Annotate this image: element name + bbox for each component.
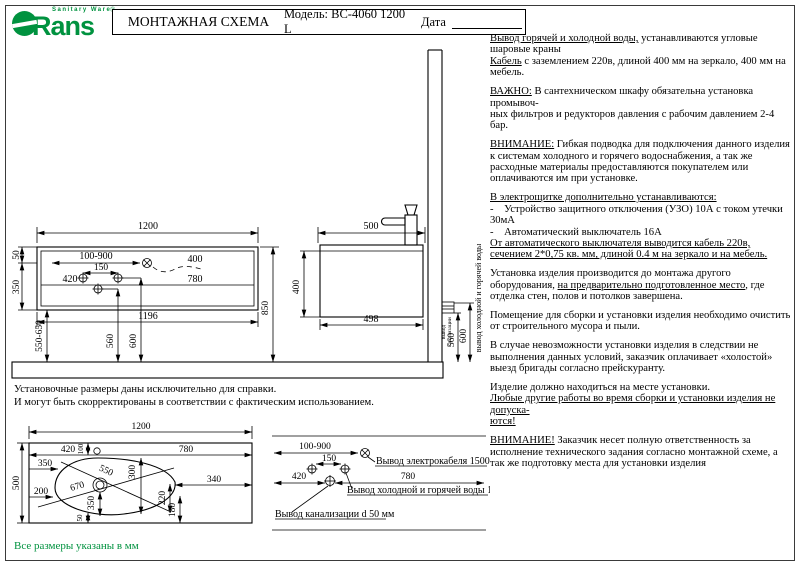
water-outlet-icon [113, 273, 124, 284]
electric-outlet-icon [361, 449, 370, 458]
dim-right-780: 780 [188, 274, 203, 285]
dim-side-water-height: 600 [459, 329, 469, 344]
outlets-layout-view: 100-900 Вывод электрокабеля 1500 мм 150 [272, 436, 490, 530]
dim-front-top: 50 [12, 250, 22, 260]
water-outlet-icon [307, 464, 318, 475]
dim-sink-340: 340 [207, 475, 222, 485]
dim-sink-550: 550 [97, 464, 114, 479]
dim-top-100: 100 [77, 443, 85, 454]
instruction-paragraph: ВАЖНО: В сантехническом шкафу обязательн… [490, 86, 792, 132]
water-outlet-label: вывод холодной и горячей воды [474, 243, 483, 352]
dim-top-right: 780 [179, 445, 194, 455]
instruction-paragraph: ВНИМАНИЕ! Заказчик несет полную ответств… [490, 435, 792, 469]
water-outlet-icon [340, 464, 351, 475]
front-view: 1200 50 350 100-900 400 [12, 221, 279, 362]
dim-outlet-range: 100-900 [299, 442, 331, 452]
cable-outlet-label: Вывод электрокабеля 1500 мм [376, 456, 490, 467]
instruction-paragraph: ВНИМАНИЕ: Гибкая подводка для подключени… [490, 139, 792, 185]
water-outlet-label: Вывод холодной и горячей воды 1/2" [347, 485, 490, 496]
dim-sink-670: 670 [69, 480, 86, 494]
dim-socket-range: 100-900 [79, 251, 112, 262]
water-outlet-icon [78, 273, 89, 284]
dim-top-depth: 500 [12, 476, 22, 491]
dim-water-height: 600 [129, 334, 139, 349]
units-note: Все размеры указаны в мм [14, 540, 139, 552]
instruction-paragraph: Изделие должно находиться на месте устан… [490, 382, 792, 428]
dim-side-depth: 500 [364, 221, 379, 232]
pipe-stub [442, 302, 454, 313]
dim-between-150: 150 [94, 263, 109, 273]
electric-outlet-icon [143, 259, 152, 268]
logo-brand-text: Rans [32, 15, 94, 37]
floor [12, 362, 443, 378]
instruction-paragraph: Помещение для сборки и установки изделия… [490, 310, 792, 333]
dim-sink-50: 50 [76, 514, 84, 522]
note-line-1: Установочные размеры даны исключительно … [14, 383, 374, 396]
montage-scheme-page: Rans Sanitary Ware ® МОНТАЖНАЯ СХЕМА Мод… [0, 0, 800, 566]
dim-sink-180: 180 [168, 503, 178, 518]
sewer-outlet-label: Вывод канализации d 50 мм [275, 509, 395, 520]
dim-left-420: 420 [63, 274, 78, 285]
brand-logo: Rans Sanitary Ware ® [12, 7, 94, 37]
dim-sink-350a: 350 [38, 459, 53, 469]
dim-sink-300: 300 [128, 465, 138, 480]
wall [428, 50, 442, 362]
dim-sink-200: 200 [34, 487, 49, 497]
dim-sink-350b: 350 [87, 496, 97, 511]
logo-tagline: Sanitary Ware [52, 7, 111, 13]
logo-disc-icon [12, 11, 37, 36]
dim-top-width: 1200 [132, 422, 151, 432]
drain-inner [96, 481, 104, 489]
model-label: Модель: BC-4060 1200 L [284, 7, 412, 37]
dim-outlet-420: 420 [292, 472, 307, 482]
bottom-drawing: 1200 500 420 780 100 350 550 300 670 [8, 422, 490, 540]
dim-side-bottom-depth: 498 [364, 314, 379, 325]
note-line-2: И могут быть скорректированы в соответст… [14, 396, 374, 409]
sewer-outlet-label-2: канализации [447, 317, 453, 347]
dim-mount-height: 550-650 [35, 320, 45, 352]
countertop-top-view: 1200 500 420 780 100 350 550 300 670 [12, 422, 252, 523]
scheme-title: МОНТАЖНАЯ СХЕМА [128, 14, 269, 30]
dim-side-height: 400 [292, 280, 302, 295]
dim-front-350: 350 [12, 280, 22, 295]
main-drawing: 1200 50 350 100-900 400 [8, 40, 490, 385]
dim-cable-400: 400 [188, 254, 203, 265]
dim-outlet-780: 780 [401, 472, 416, 482]
faucet-icon [382, 205, 418, 245]
dim-total-height: 850 [261, 301, 271, 316]
reference-notes: Установочные размеры даны исключительно … [14, 383, 374, 409]
faucet-hole [94, 448, 100, 454]
instruction-paragraph: Вывод горячей и холодной воды, устанавли… [490, 33, 792, 79]
date-label: Дата [421, 15, 446, 30]
model-box: Модель: BC-4060 1200 L [284, 9, 413, 35]
dim-top-left: 420 [61, 445, 76, 455]
instruction-paragraph: В электрощитке дополнительно устанавлива… [490, 192, 792, 260]
installation-instructions: Вывод горячей и холодной воды, устанавли… [490, 33, 792, 477]
date-box: Дата [412, 9, 526, 35]
scheme-title-box: МОНТАЖНАЯ СХЕМА [112, 9, 285, 35]
instruction-paragraph: Установка изделия производится до монтаж… [490, 268, 792, 302]
side-view: 500 400 498 [292, 50, 483, 362]
dim-front-width: 1200 [138, 221, 158, 232]
dim-outlet-150: 150 [322, 454, 337, 464]
dim-sink-220: 220 [158, 491, 168, 506]
instruction-paragraph: В случае невозможности установки изделия… [490, 340, 792, 374]
dim-sewer-height: 560 [106, 334, 116, 349]
sewer-outlet-icon [324, 475, 336, 487]
date-blank-line [452, 15, 522, 29]
